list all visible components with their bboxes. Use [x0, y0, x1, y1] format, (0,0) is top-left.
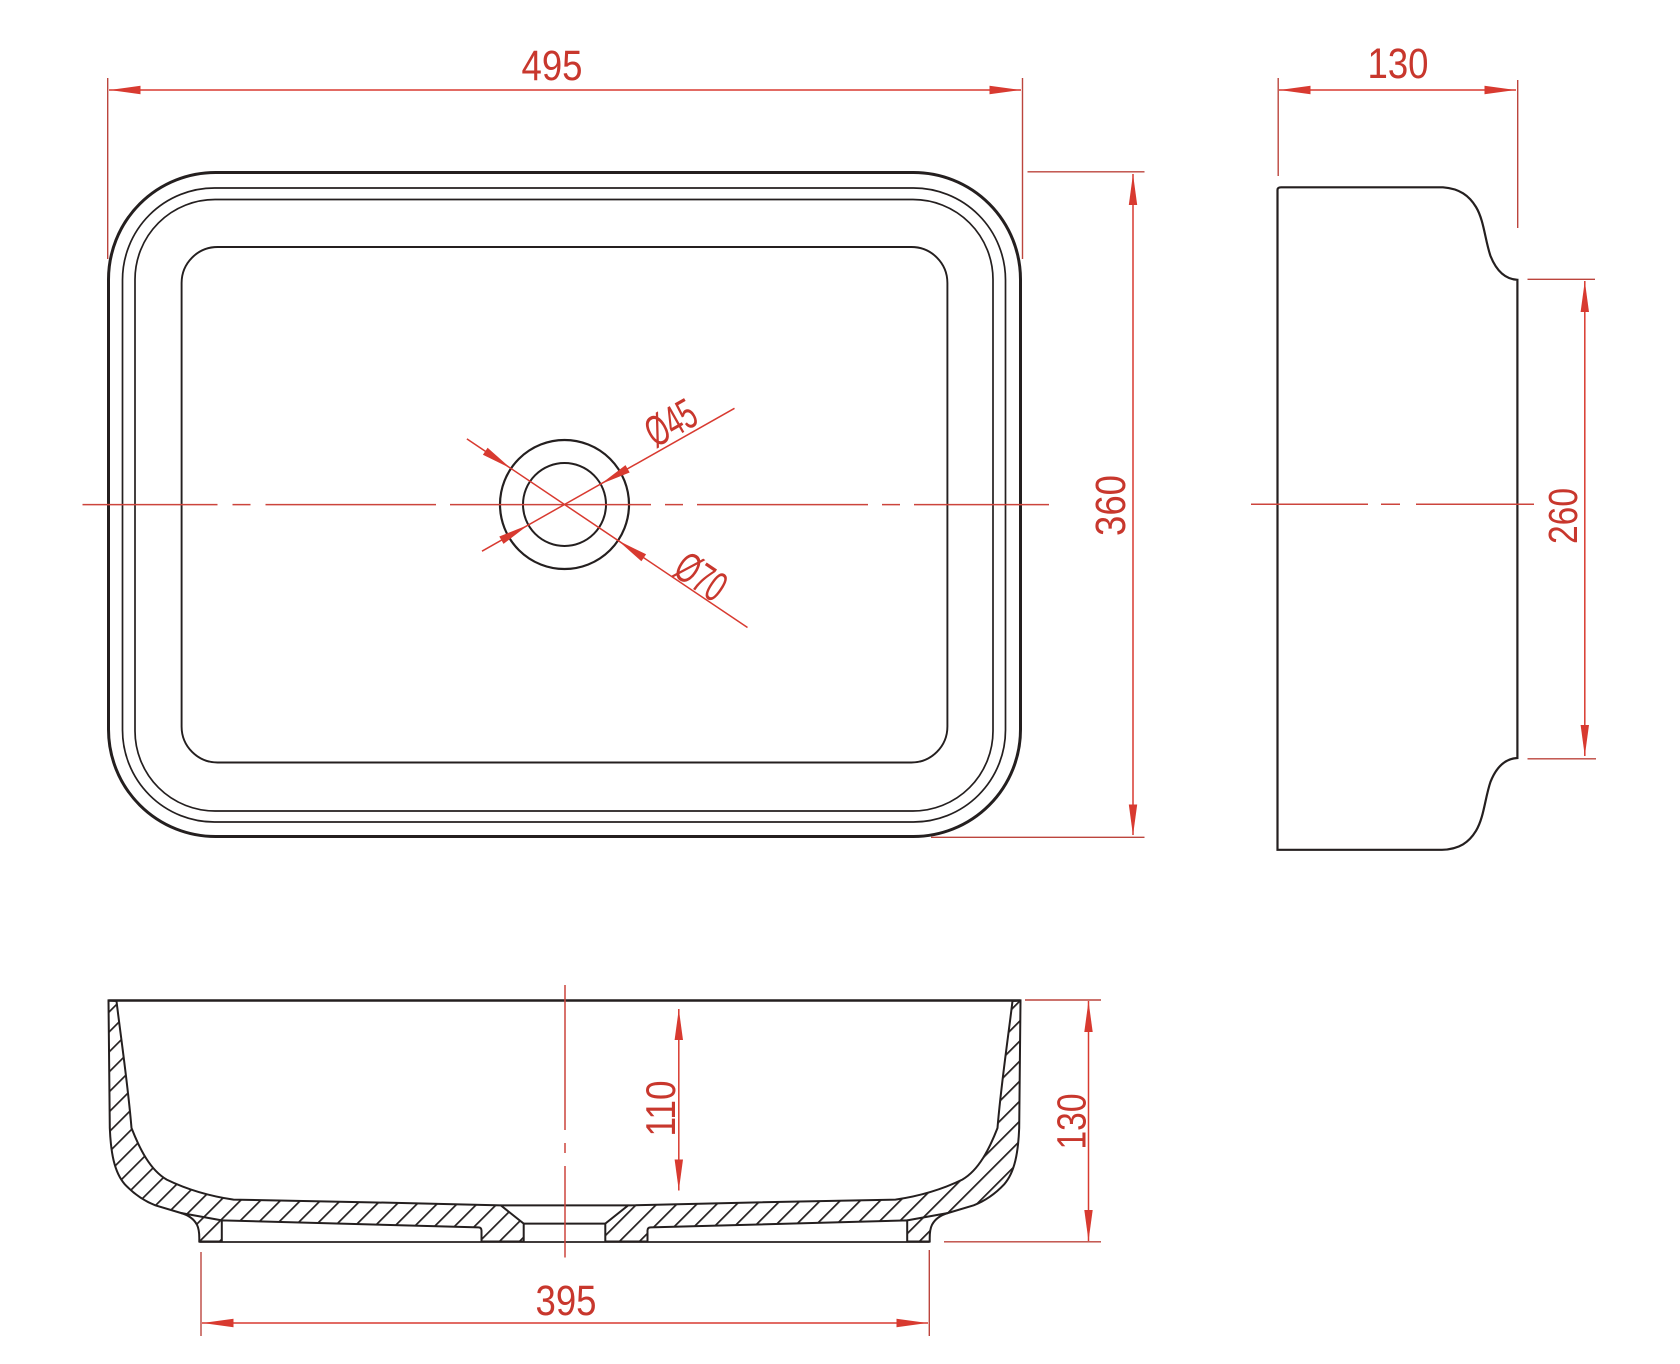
svg-text:360: 360: [1087, 475, 1135, 536]
svg-text:130: 130: [1049, 1094, 1095, 1150]
svg-text:110: 110: [637, 1081, 684, 1137]
svg-text:395: 395: [536, 1277, 597, 1325]
svg-text:130: 130: [1368, 40, 1429, 88]
svg-text:260: 260: [1540, 488, 1586, 544]
svg-text:495: 495: [522, 42, 583, 90]
